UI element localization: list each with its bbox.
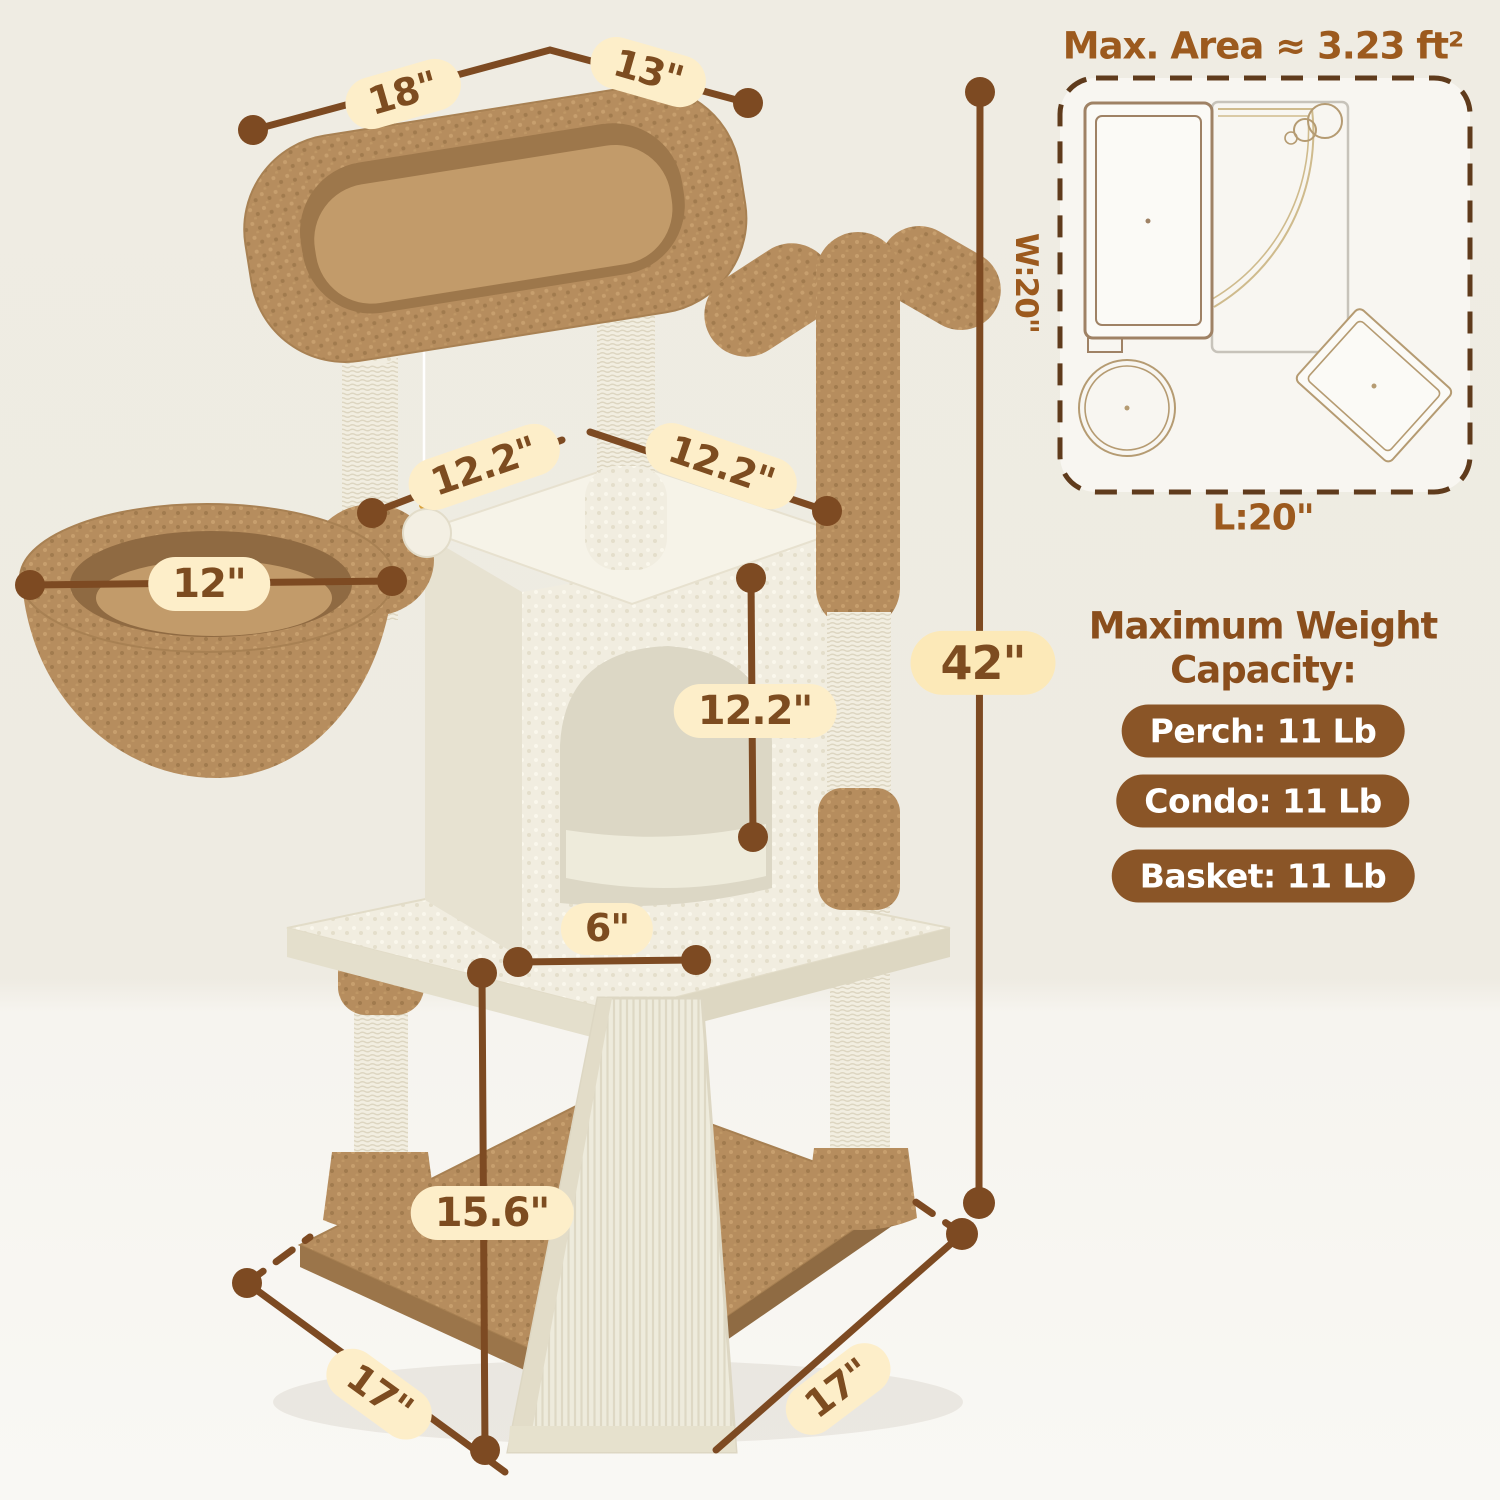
floor-plan-width-label: W:20" <box>1008 233 1044 333</box>
cat-tree-dimensions-infographic: 18" 13" 12.2" 12.2" 12" 12.2" 6" 15.6" 1… <box>0 0 1500 1500</box>
hanging-basket <box>20 504 394 778</box>
weight-badge-perch: Perch: 11 Lb <box>1122 705 1405 758</box>
weight-badge-basket: Basket: 11 Lb <box>1112 850 1415 903</box>
plan-perch-outline <box>1085 103 1212 352</box>
dim-line-ramp-top <box>518 960 696 962</box>
dim-label-ramp-top-width: 6" <box>561 903 653 955</box>
dim-label-total-height: 42" <box>911 631 1056 695</box>
dim-label-condo-height: 12.2" <box>674 684 837 738</box>
weight-badge-condo: Condo: 11 Lb <box>1116 775 1409 828</box>
floor-plan-title: Max. Area ≈ 3.23 ft² <box>1063 25 1463 68</box>
floor-plan-panel <box>1060 78 1470 492</box>
weight-capacity-heading-line1: Maximum Weight <box>1089 604 1437 647</box>
weight-capacity-heading-line2: Capacity: <box>1170 648 1356 691</box>
dim-label-ramp-length: 15.6" <box>411 1186 574 1240</box>
hanging-ball-toy <box>403 340 451 557</box>
dim-label-basket-diameter: 12" <box>148 557 270 611</box>
weight-capacity-heading: Maximum Weight Capacity: <box>1089 604 1437 691</box>
cat-tree-illustration <box>20 72 1015 1452</box>
floor-plan-length-label: L:20" <box>1212 498 1313 539</box>
